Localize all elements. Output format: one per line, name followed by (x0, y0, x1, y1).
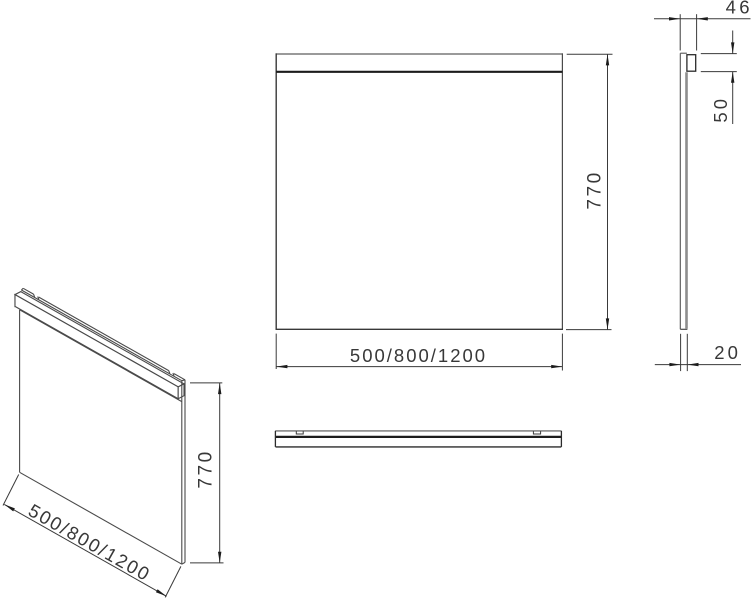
svg-text:770: 770 (585, 170, 606, 210)
svg-text:46: 46 (726, 0, 753, 18)
svg-text:20: 20 (714, 342, 741, 363)
svg-text:770: 770 (195, 449, 216, 489)
svg-text:500/800/1200: 500/800/1200 (350, 345, 487, 366)
svg-text:50: 50 (710, 96, 731, 123)
